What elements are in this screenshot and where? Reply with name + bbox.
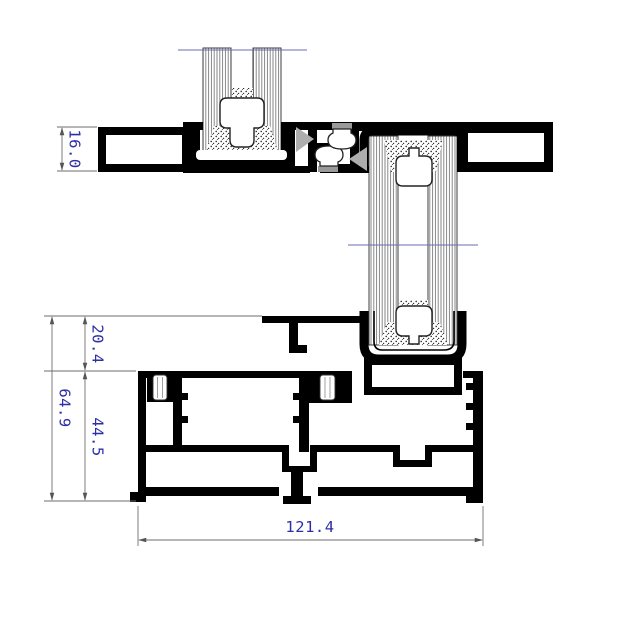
- cad-drawing-canvas: 16.0 20.4 44.5 64.9 121.4: [0, 0, 640, 640]
- dim-label-64-9: 64.9: [56, 388, 74, 427]
- sill-foot: [466, 493, 483, 503]
- right-frame-profile: [457, 122, 553, 172]
- glass-unit-lower: [369, 136, 457, 345]
- gasket-pad: [332, 123, 352, 129]
- sill-foot: [130, 492, 146, 502]
- dim-label-16-0: 16.0: [66, 129, 84, 168]
- glass-unit-upper: [203, 48, 281, 152]
- gasket-pad: [318, 166, 338, 172]
- section-drawing: 16.0 20.4 44.5 64.9 121.4: [0, 0, 640, 640]
- dim-label-44-5: 44.5: [89, 417, 107, 456]
- left-frame-profile: [98, 127, 190, 172]
- dim-label-121-4: 121.4: [285, 518, 334, 536]
- dim-label-20-4: 20.4: [89, 324, 107, 363]
- trim-profile: [262, 316, 368, 353]
